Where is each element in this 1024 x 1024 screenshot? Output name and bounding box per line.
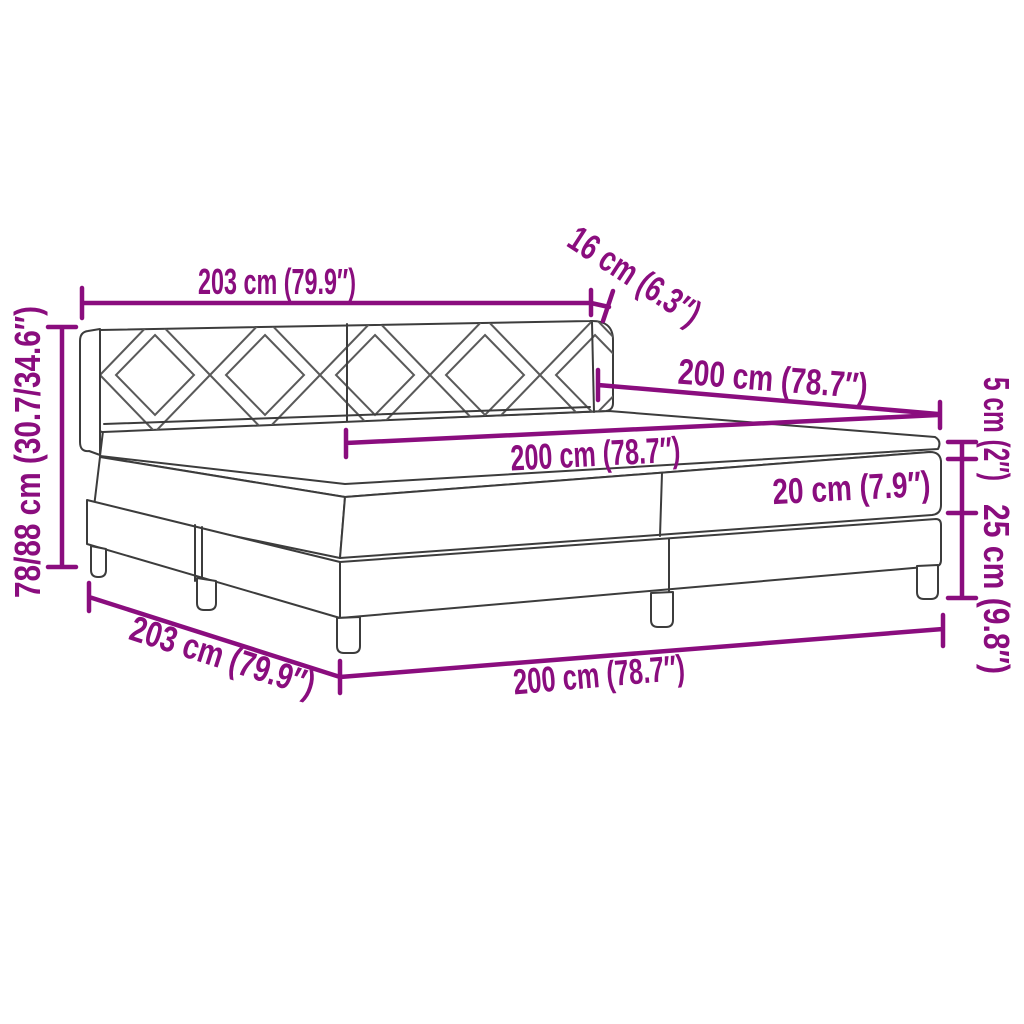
bed-leg [651, 592, 673, 627]
dim-label-base-height: 25 cm (9.8″) [976, 504, 1017, 674]
dim-label-frame-width: 203 cm (79.9″) [125, 607, 320, 704]
bed-leg [917, 565, 938, 599]
dim-label-topper-height: 5 cm (2″) [976, 377, 1017, 481]
headboard-left-wing [80, 329, 100, 455]
dim-label-mattress-length: 200 cm (78.7″) [509, 429, 681, 479]
dim-label-bed-length-upper: 200 cm (78.7″) [677, 351, 870, 407]
dim-label-base-length: 200 cm (78.7″) [511, 647, 686, 703]
bed-leg [91, 546, 106, 577]
dim-line-headboard-depth [591, 291, 613, 321]
dim-line-right-heights [948, 442, 976, 598]
dimension-diagram-page: 203 cm (79.9″) 16 cm (6.3″) 200 cm (78.7… [0, 0, 1024, 1024]
bed-leg [197, 578, 216, 610]
bed-leg [337, 617, 360, 653]
dim-label-mattress-height: 20 cm (7.9″) [771, 463, 931, 512]
bed-dimension-diagram: 203 cm (79.9″) 16 cm (6.3″) 200 cm (78.7… [0, 0, 1024, 1024]
dim-label-headboard-height: 78/88 cm (30.7/34.6″) [7, 306, 48, 598]
dim-line-headboard-height [48, 327, 76, 567]
dim-label-headboard-width: 203 cm (79.9″) [198, 261, 356, 302]
dim-label-headboard-depth: 16 cm (6.3″) [561, 217, 709, 333]
